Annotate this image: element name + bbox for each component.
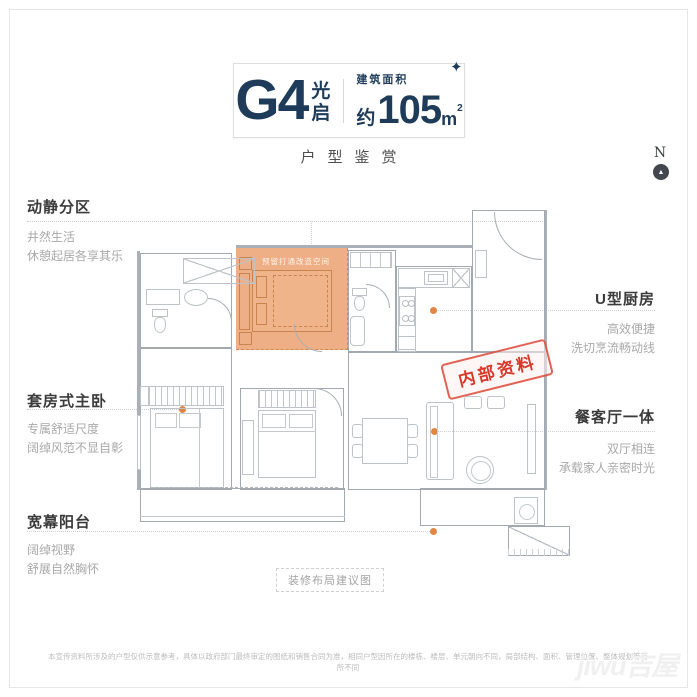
chair-icon	[407, 424, 418, 438]
title-box: G4 光启 建筑面积 约 105 m 2	[233, 63, 465, 138]
pillow-icon	[256, 276, 267, 298]
window-icon	[137, 415, 141, 470]
page-subtitle: 户型鉴赏	[0, 146, 697, 167]
disclaimer-text: 本宣传资料所涉及的户型仅供示意参考，具体以政府部门最终审定的图纸和销售合同为准，…	[48, 651, 648, 673]
feature-line: 阔绰风范不显自彰	[27, 439, 123, 458]
floorplan-page: G4 光启 建筑面积 约 105 m 2 ✦ 户型鉴赏 N ▲ 动静分区 井然生…	[0, 0, 697, 697]
bathtub-icon	[350, 316, 365, 346]
armchair-icon	[464, 396, 482, 409]
feature-line: 休憩起居各享其乐	[27, 247, 123, 266]
unit-code: G4	[235, 72, 307, 129]
vanity-counter-icon	[146, 289, 180, 305]
sliding-door-icon	[150, 487, 338, 488]
toilet-tank-icon	[352, 288, 367, 296]
toilet-icon	[154, 317, 166, 333]
coffee-table-icon	[466, 456, 494, 484]
compass-arrow-icon: ▲	[658, 169, 665, 176]
leader-line-balcony	[27, 531, 434, 532]
bed-icon	[258, 410, 316, 478]
leader-line-zoning-drop	[311, 221, 312, 248]
feature-title-master-suite: 套房式主卧	[27, 390, 107, 411]
chair-icon	[352, 424, 363, 438]
area-approx: 约	[356, 109, 375, 130]
leader-dot	[430, 528, 437, 535]
area-label: 建筑面积	[356, 71, 462, 87]
sink-basin-icon	[428, 274, 444, 282]
bed-icon	[150, 408, 224, 488]
plan-caption: 装修布局建议图	[276, 568, 384, 592]
blanket-icon	[273, 275, 328, 327]
title-divider	[343, 79, 344, 123]
balcony-rail	[140, 516, 345, 517]
area-value: 105	[377, 90, 441, 130]
feature-line: 阔绰视野	[27, 541, 99, 560]
washer-icon	[514, 497, 538, 524]
shelf-icon	[350, 252, 392, 268]
chair-icon	[407, 444, 418, 458]
toilet-icon	[354, 296, 365, 311]
feature-line: 井然生活	[27, 228, 123, 247]
tv-icon	[527, 404, 536, 474]
compass-north-label: N	[649, 145, 671, 161]
area-unit: m	[441, 110, 457, 130]
bay-window-sill	[508, 549, 570, 556]
wardrobe-icon	[258, 390, 316, 408]
cabinet-icon	[140, 386, 149, 406]
pillow-icon	[256, 303, 267, 325]
wardrobe-icon	[183, 258, 255, 284]
cabinet-icon	[398, 336, 416, 350]
stove-icon	[399, 296, 415, 326]
feature-title-balcony: 宽幕阳台	[27, 511, 91, 532]
feature-title-zoning: 动静分区	[27, 196, 91, 217]
watermark-logo: jiwu吉屋	[577, 644, 678, 683]
unit-name: 光启	[311, 81, 333, 125]
leader-line-zoning	[27, 221, 545, 222]
feature-line: 舒展自然胸怀	[27, 560, 99, 579]
feature-line: 专属舒适尺度	[27, 420, 123, 439]
shoe-cabinet-icon	[475, 250, 487, 278]
nightstand-icon	[239, 332, 252, 345]
compass-icon: ▲	[653, 164, 669, 180]
chair-icon	[352, 444, 363, 458]
desk-icon	[242, 420, 254, 475]
dining-table-icon	[362, 418, 408, 464]
sparkle-icon: ✦	[450, 58, 463, 76]
wardrobe-icon	[148, 386, 224, 406]
toilet-tank-icon	[152, 309, 168, 317]
sofa-icon	[426, 402, 454, 480]
fridge-icon	[452, 268, 470, 288]
armchair-icon	[487, 396, 505, 409]
sink-icon	[184, 289, 208, 306]
area-superscript: 2	[457, 104, 463, 130]
highlight-note: 预留打通改造空间	[250, 256, 342, 267]
